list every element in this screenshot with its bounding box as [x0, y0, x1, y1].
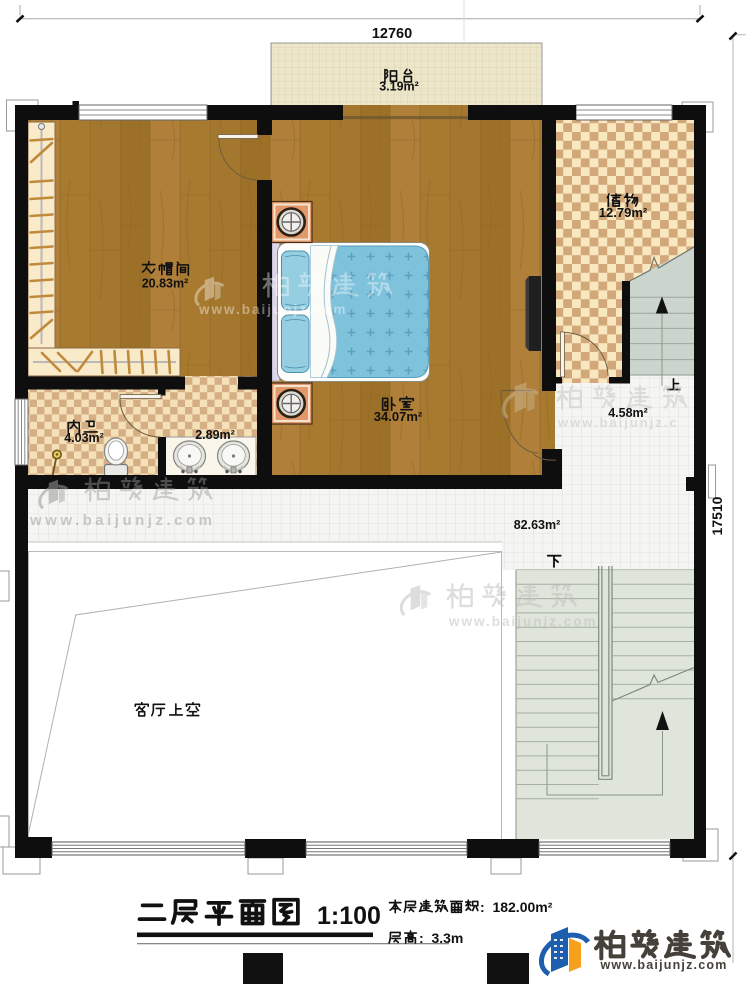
svg-text:www.baijunjz.com: www.baijunjz.com: [448, 614, 598, 629]
svg-text:4.03m²: 4.03m²: [64, 431, 104, 445]
svg-text:www.baijunjz.c: www.baijunjz.c: [557, 415, 679, 430]
svg-text:: 3.3m: : 3.3m: [419, 930, 463, 946]
svg-text:17510: 17510: [709, 496, 725, 535]
svg-text:20.83m²: 20.83m²: [142, 277, 189, 291]
svg-text:12760: 12760: [372, 26, 412, 42]
svg-text:82.63m²: 82.63m²: [514, 518, 561, 532]
svg-text:1:100: 1:100: [317, 902, 381, 930]
svg-text:: 182.00m²: : 182.00m²: [480, 899, 553, 915]
svg-text:2.89m²: 2.89m²: [195, 428, 235, 442]
svg-text:www.baijunjz.com: www.baijunjz.com: [599, 958, 727, 972]
svg-text:www.baijunjz.com: www.baijunjz.com: [29, 512, 215, 529]
svg-text:3.19m²: 3.19m²: [379, 80, 419, 94]
svg-text:www.baijunjz.com: www.baijunjz.com: [198, 302, 348, 317]
svg-text:34.07m²: 34.07m²: [374, 409, 423, 424]
svg-text:12.79m²: 12.79m²: [599, 205, 648, 220]
